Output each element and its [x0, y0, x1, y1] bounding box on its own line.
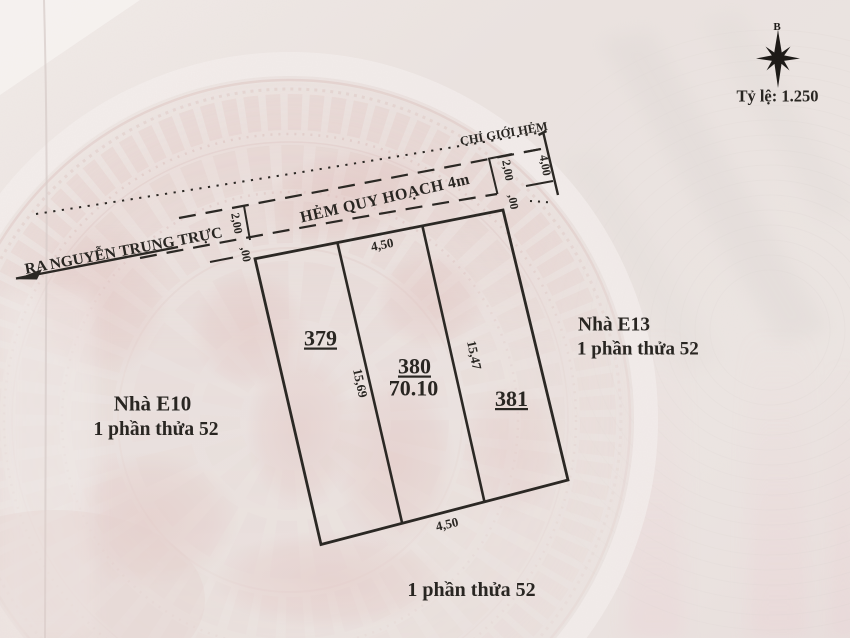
svg-text:,00: ,00 — [238, 246, 254, 263]
svg-text:,00: ,00 — [505, 193, 521, 210]
svg-text:379: 379 — [304, 326, 337, 351]
svg-text:1 phần thửa 52: 1 phần thửa 52 — [94, 419, 219, 440]
svg-text:B: B — [773, 21, 781, 33]
svg-text:70.10: 70.10 — [389, 376, 439, 401]
svg-text:Nhà E10: Nhà E10 — [114, 392, 192, 416]
svg-text:1 phần thửa 52: 1 phần thửa 52 — [577, 339, 699, 360]
svg-text:381: 381 — [495, 386, 528, 411]
svg-text:Tỷ lệ: 1.250: Tỷ lệ: 1.250 — [736, 87, 818, 106]
svg-text:1 phần thửa 52: 1 phần thửa 52 — [407, 579, 535, 601]
svg-text:Nhà E13: Nhà E13 — [578, 315, 650, 336]
